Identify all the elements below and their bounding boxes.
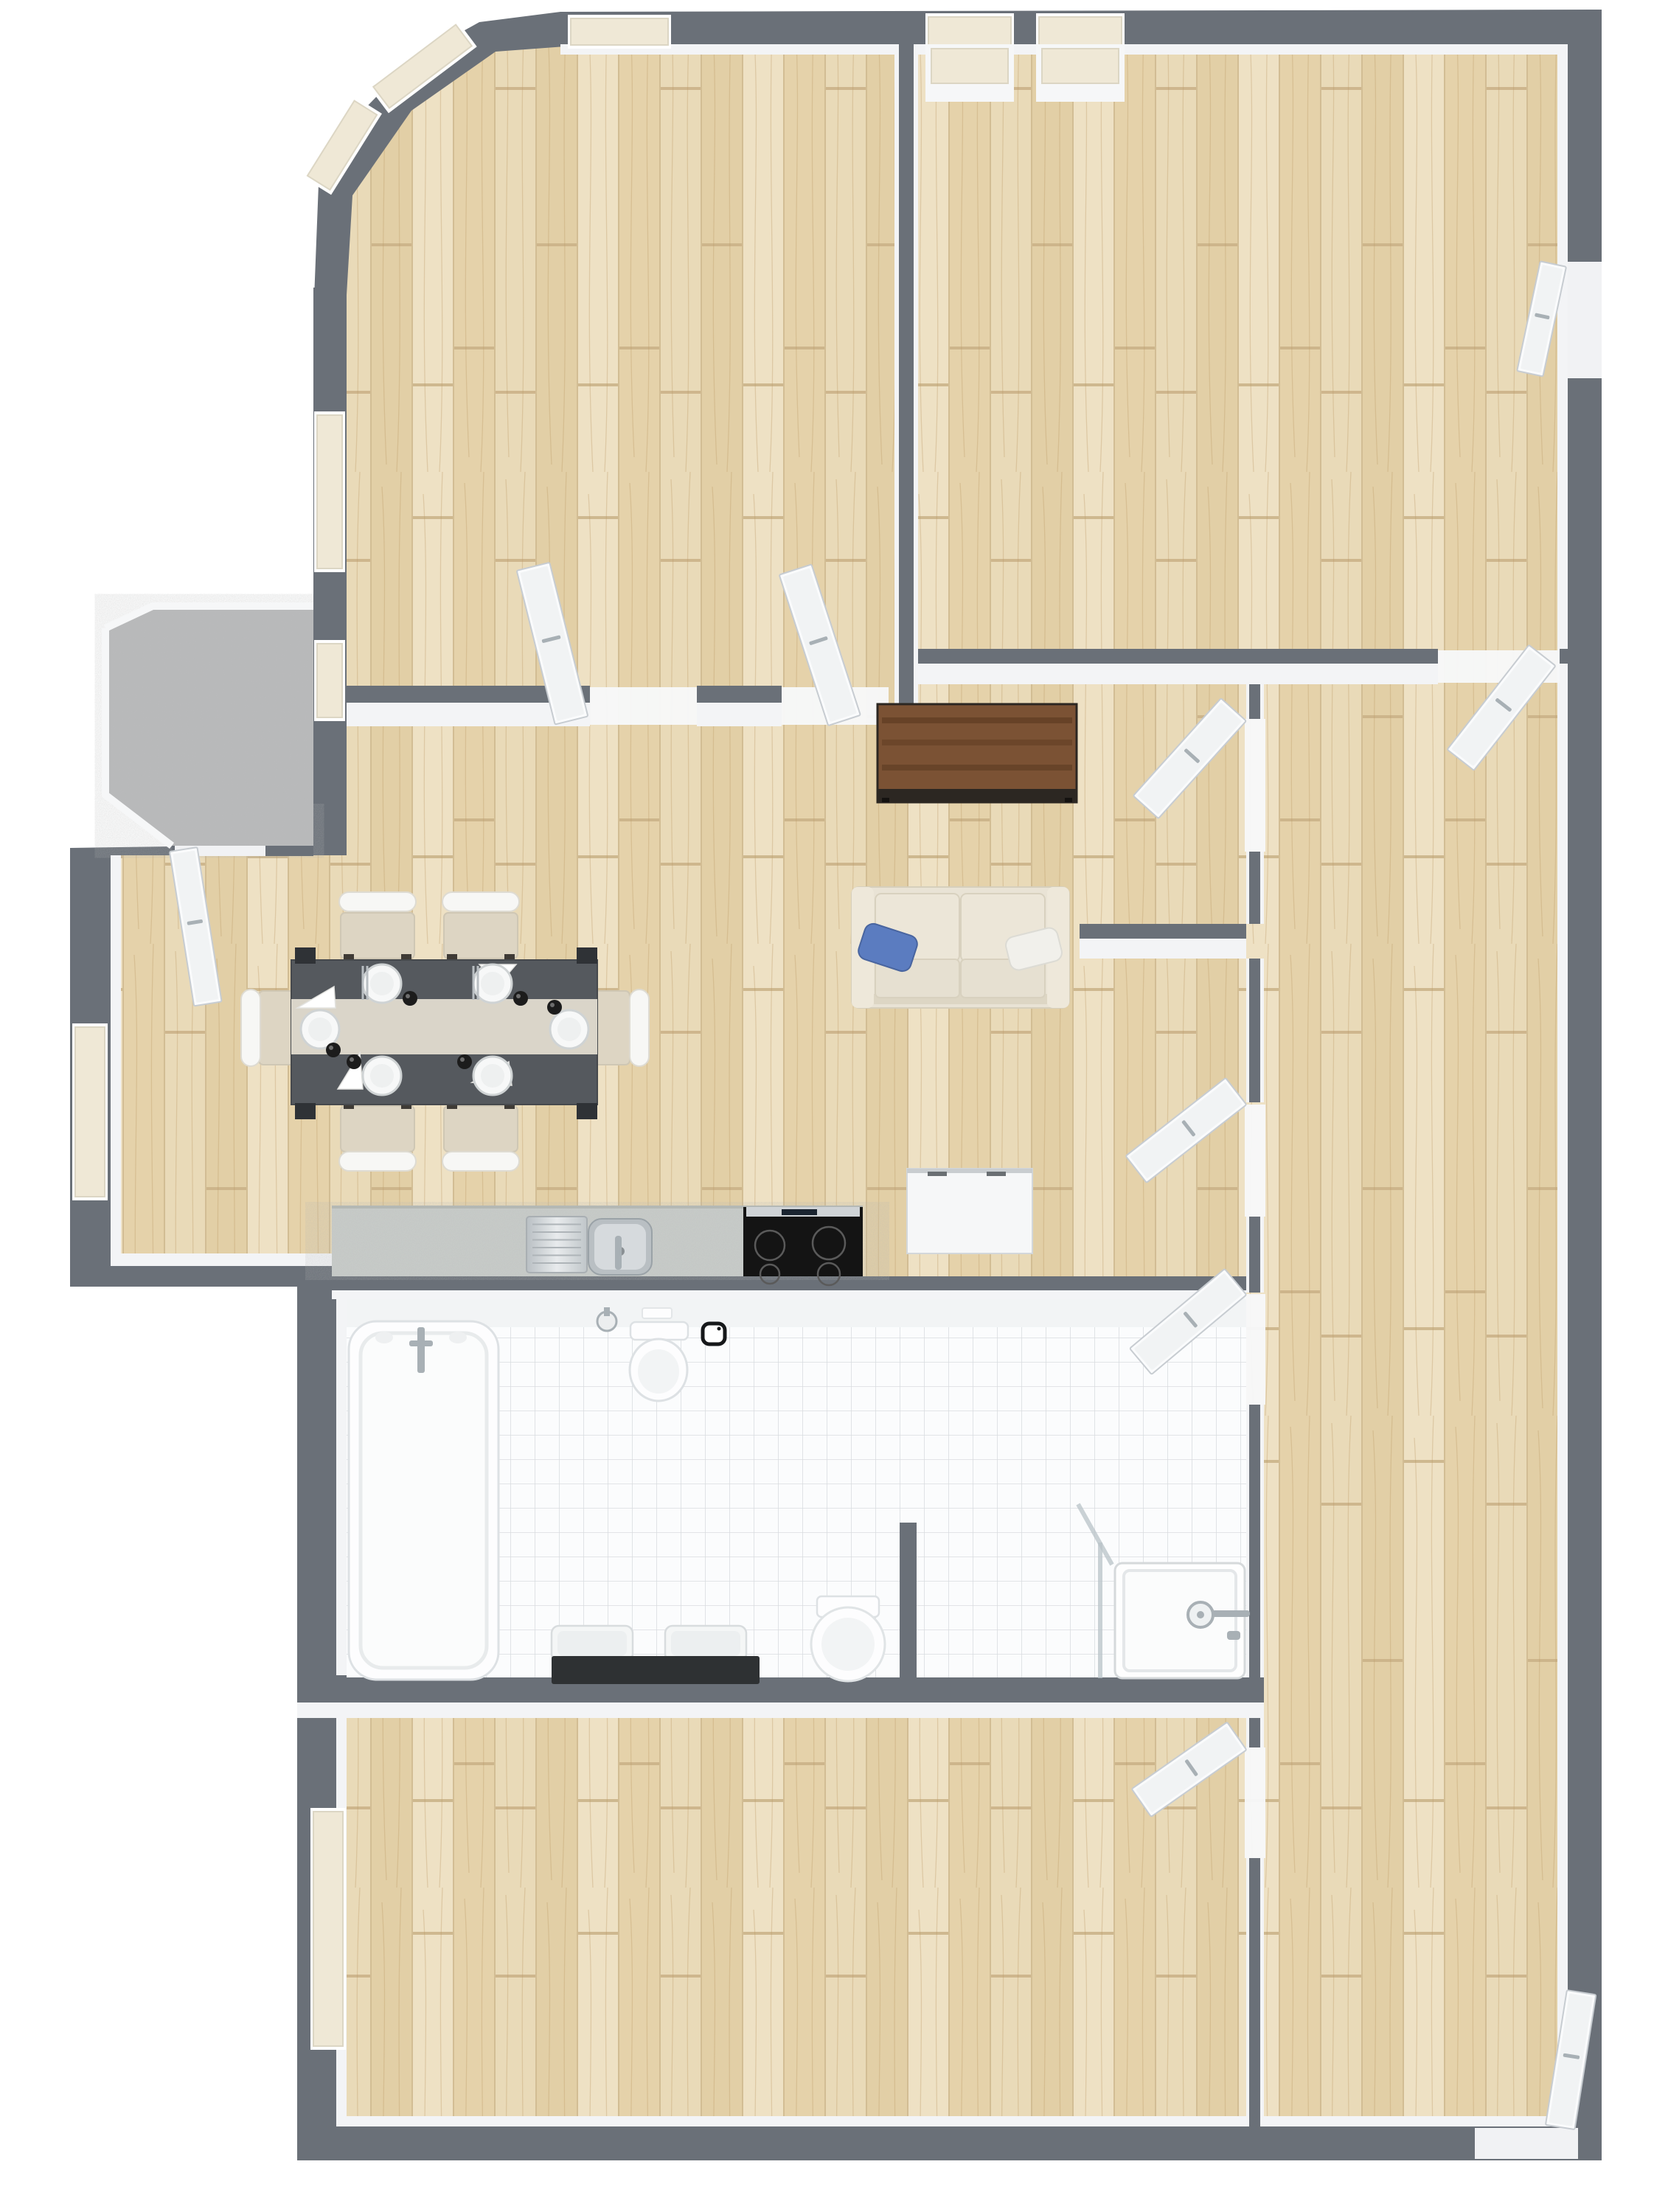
shower-valve [1227, 1631, 1240, 1640]
plate-center-1 [370, 972, 394, 995]
wc-stub-wall-over [900, 1523, 917, 1677]
chair-leg-b [504, 954, 515, 960]
cup-5 [326, 1043, 341, 1057]
tub-hole-1 [375, 1332, 393, 1343]
balcony-floor [105, 606, 313, 846]
dining-chair-1 [339, 892, 416, 960]
bathroom [347, 1299, 1250, 1684]
rightroom-bottom-door-opening [1475, 2128, 1578, 2159]
tub-faucet [417, 1327, 425, 1373]
bathroom-bottom-wall [297, 1677, 1264, 1703]
wing-left-wall-face [111, 855, 121, 1266]
dining-chair-2 [442, 892, 519, 960]
chair-back [339, 892, 416, 911]
chair-back [442, 892, 519, 911]
hall-east-wall-c-core [1249, 959, 1260, 1102]
sideboard-grain-3 [882, 765, 1072, 771]
chair-back [241, 990, 260, 1066]
cup-highlight-1 [406, 994, 410, 998]
hall-east-wall-b-core [1249, 852, 1260, 924]
bedroom2-bottom-wall-a-core [918, 649, 1438, 664]
chair-seat [444, 913, 518, 959]
tp-bracket [604, 1307, 610, 1316]
bedroom2-top-window-1-sill-panel [931, 49, 1008, 83]
appliance-handle-right [987, 1172, 1006, 1176]
bath-left-wall-face [336, 1287, 347, 1675]
chair-leg-b [401, 954, 411, 960]
bathtub-inner [361, 1333, 487, 1668]
cup-highlight-3 [350, 1057, 354, 1062]
plate-center-4 [481, 1064, 504, 1088]
bottomroom-left-window [313, 1812, 343, 2046]
dining-left-window [75, 1027, 105, 1197]
cup-1 [403, 991, 417, 1006]
plate-center-5 [308, 1018, 332, 1041]
sideboard-grain-1 [882, 717, 1072, 723]
hall-east-wall-d-core [1249, 1217, 1260, 1293]
cup-highlight-4 [460, 1057, 465, 1062]
cup-6 [547, 1000, 562, 1015]
sideboard-foot-1 [1065, 798, 1072, 802]
floorplan-page [0, 0, 1654, 2212]
appliance-top-edge [907, 1169, 1032, 1173]
rightroom-door-opening [1245, 719, 1265, 852]
floorplan-rendering [0, 0, 1654, 2212]
bathroom-shelf [642, 1308, 672, 1318]
chair-seat [341, 1106, 414, 1152]
kitchen-wall-face [332, 1290, 1246, 1299]
bedroom2-top-window-2-sill-panel [1042, 49, 1119, 83]
sink-faucet [615, 1236, 622, 1270]
bedroom2-top-window-2 [1039, 17, 1122, 45]
cup-2 [513, 991, 528, 1006]
dining-chair-3 [339, 1103, 416, 1171]
sofa [852, 887, 1069, 1008]
living-stub-wall-core [1080, 924, 1246, 939]
shower-tray-inner [1124, 1571, 1236, 1671]
plate-center-6 [557, 1018, 581, 1041]
hall-east-wall-f-core [1249, 1858, 1260, 2126]
bedroom2-right-door-opening [1568, 262, 1602, 378]
sideboard [878, 704, 1077, 802]
bedroom1-top-window [571, 18, 668, 45]
tub-hole-2 [449, 1332, 467, 1343]
bedroom1-bottom-wall-b-core [697, 686, 782, 703]
cooktop-display [782, 1209, 817, 1215]
chair-leg-a [447, 954, 457, 960]
dining-chair-4 [442, 1103, 519, 1171]
toilet-tank [630, 1322, 688, 1340]
toilet2-seat [821, 1618, 875, 1671]
right-wall-face [1557, 44, 1568, 2126]
table-leg-2 [577, 947, 597, 964]
appliance-handle-left [928, 1172, 947, 1176]
tub-faucet-bar [409, 1340, 433, 1346]
bottomroom-door-opening [1245, 1747, 1265, 1858]
plate-center-3 [370, 1064, 394, 1088]
table-leg-1 [295, 947, 316, 964]
table-leg-4 [577, 1103, 597, 1119]
bedroom1-left-window [317, 415, 342, 568]
shower-arm [1212, 1610, 1250, 1617]
sideboard-grain-2 [882, 740, 1072, 745]
wall-box-dot [717, 1327, 721, 1331]
cup-4 [457, 1054, 472, 1069]
wing-bottom-wall-face [111, 1253, 332, 1266]
chair-back [630, 990, 649, 1066]
sideboard-frame-bottom [878, 789, 1077, 802]
bathroom-wall-box [703, 1324, 725, 1344]
bottom-wall-face [347, 2116, 1568, 2126]
chair-back [442, 1152, 519, 1171]
table-leg-3 [295, 1103, 316, 1119]
bedroom2-top-window-1 [928, 17, 1011, 45]
cup-highlight-6 [550, 1003, 555, 1007]
bedroom1-door-opening-1 [590, 687, 697, 725]
bedroom-divider-wall-core [899, 44, 914, 726]
cup-highlight-5 [329, 1046, 333, 1050]
rightroom-door-opening-2 [1245, 1105, 1265, 1217]
bath-mat [552, 1656, 760, 1684]
bathroom-door-opening [1245, 1294, 1265, 1405]
chair-leg-a [344, 954, 354, 960]
chair-back [339, 1152, 416, 1171]
basket-inner-1 [557, 1631, 627, 1656]
hall-east-wall-a-core [1249, 684, 1260, 719]
basket-inner-2 [671, 1631, 740, 1656]
balcony-window [317, 644, 342, 717]
kitchen-appliance [907, 1169, 1032, 1253]
wing-bottom-wall [70, 1266, 332, 1287]
toilet-seat [638, 1349, 679, 1394]
bedroom2-bottom-wall-b-core [1560, 649, 1568, 664]
bathroom-bottom-wall-face [297, 1703, 1264, 1718]
shower-head-center [1197, 1611, 1204, 1618]
kitchen-wall [332, 1276, 1246, 1290]
chair-seat [341, 913, 414, 959]
chair-seat [444, 1106, 518, 1152]
cup-3 [347, 1054, 361, 1069]
cup-highlight-2 [516, 994, 521, 998]
sideboard-foot-0 [882, 798, 889, 802]
plate-center-2 [481, 972, 504, 995]
